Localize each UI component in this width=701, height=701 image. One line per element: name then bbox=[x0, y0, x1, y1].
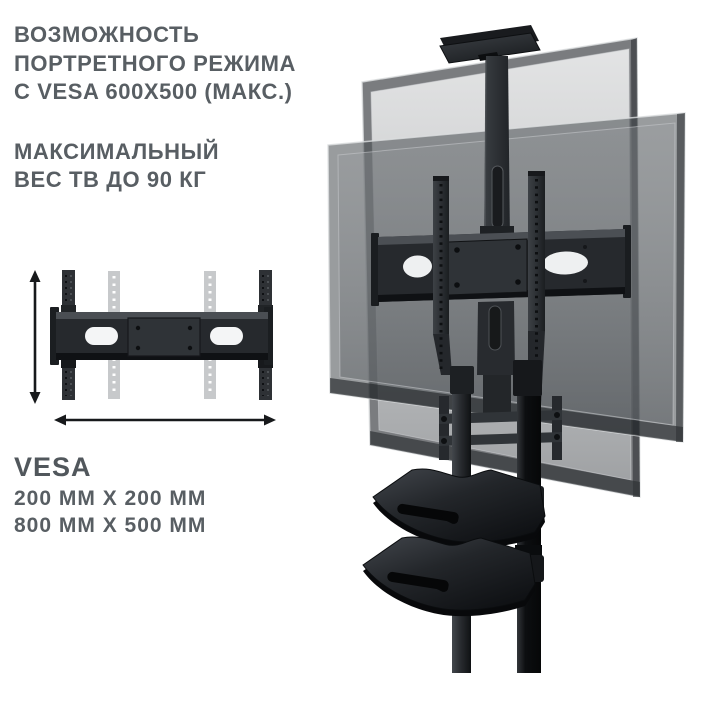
diagram-crossbar bbox=[50, 307, 273, 365]
width-arrow-icon bbox=[54, 415, 276, 426]
column-slot-lower bbox=[489, 306, 501, 350]
rail-clamp-tab bbox=[61, 305, 76, 313]
crossbar-slot bbox=[85, 327, 118, 345]
feature-portrait-line-3: С VESA 600X500 (МАКС.) bbox=[14, 78, 296, 107]
product-infographic: ВОЗМОЖНОСТЬ ПОРТРЕТНОГО РЕЖИМА С VESA 60… bbox=[0, 0, 701, 701]
column-slot bbox=[492, 166, 503, 228]
feature-portrait-line-1: ВОЗМОЖНОСТЬ bbox=[14, 21, 296, 50]
feature-weight-line-2: ВЕС ТВ ДО 90 КГ bbox=[14, 166, 219, 194]
feature-portrait-line-2: ПОРТРЕТНОГО РЕЖИМА bbox=[14, 50, 296, 79]
vesa-bracket-diagram bbox=[30, 270, 277, 426]
mount-crossbar bbox=[371, 225, 631, 306]
height-arrow-icon bbox=[30, 270, 41, 404]
vesa-spec-title: VESA bbox=[14, 452, 92, 483]
feature-portrait-mode: ВОЗМОЖНОСТЬ ПОРТРЕТНОГО РЕЖИМА С VESA 60… bbox=[14, 21, 296, 107]
vesa-size-1: 200 ММ X 200 ММ bbox=[14, 486, 206, 513]
shelf-upper bbox=[373, 469, 545, 548]
crossbar-slot bbox=[210, 327, 243, 345]
feature-max-weight: МАКСИМАЛЬНЫЙ ВЕС ТВ ДО 90 КГ bbox=[14, 138, 219, 194]
vesa-spec-sizes: 200 ММ X 200 ММ 800 ММ X 500 ММ bbox=[14, 486, 206, 539]
vesa-size-2: 800 ММ X 500 ММ bbox=[14, 513, 206, 540]
shelf-lower bbox=[363, 537, 535, 616]
rail-clamp-tab bbox=[61, 359, 76, 368]
center-plate bbox=[128, 318, 200, 356]
vesa-center-plate bbox=[448, 239, 527, 295]
feature-weight-line-1: МАКСИМАЛЬНЫЙ bbox=[14, 138, 219, 166]
product-render bbox=[328, 25, 685, 673]
